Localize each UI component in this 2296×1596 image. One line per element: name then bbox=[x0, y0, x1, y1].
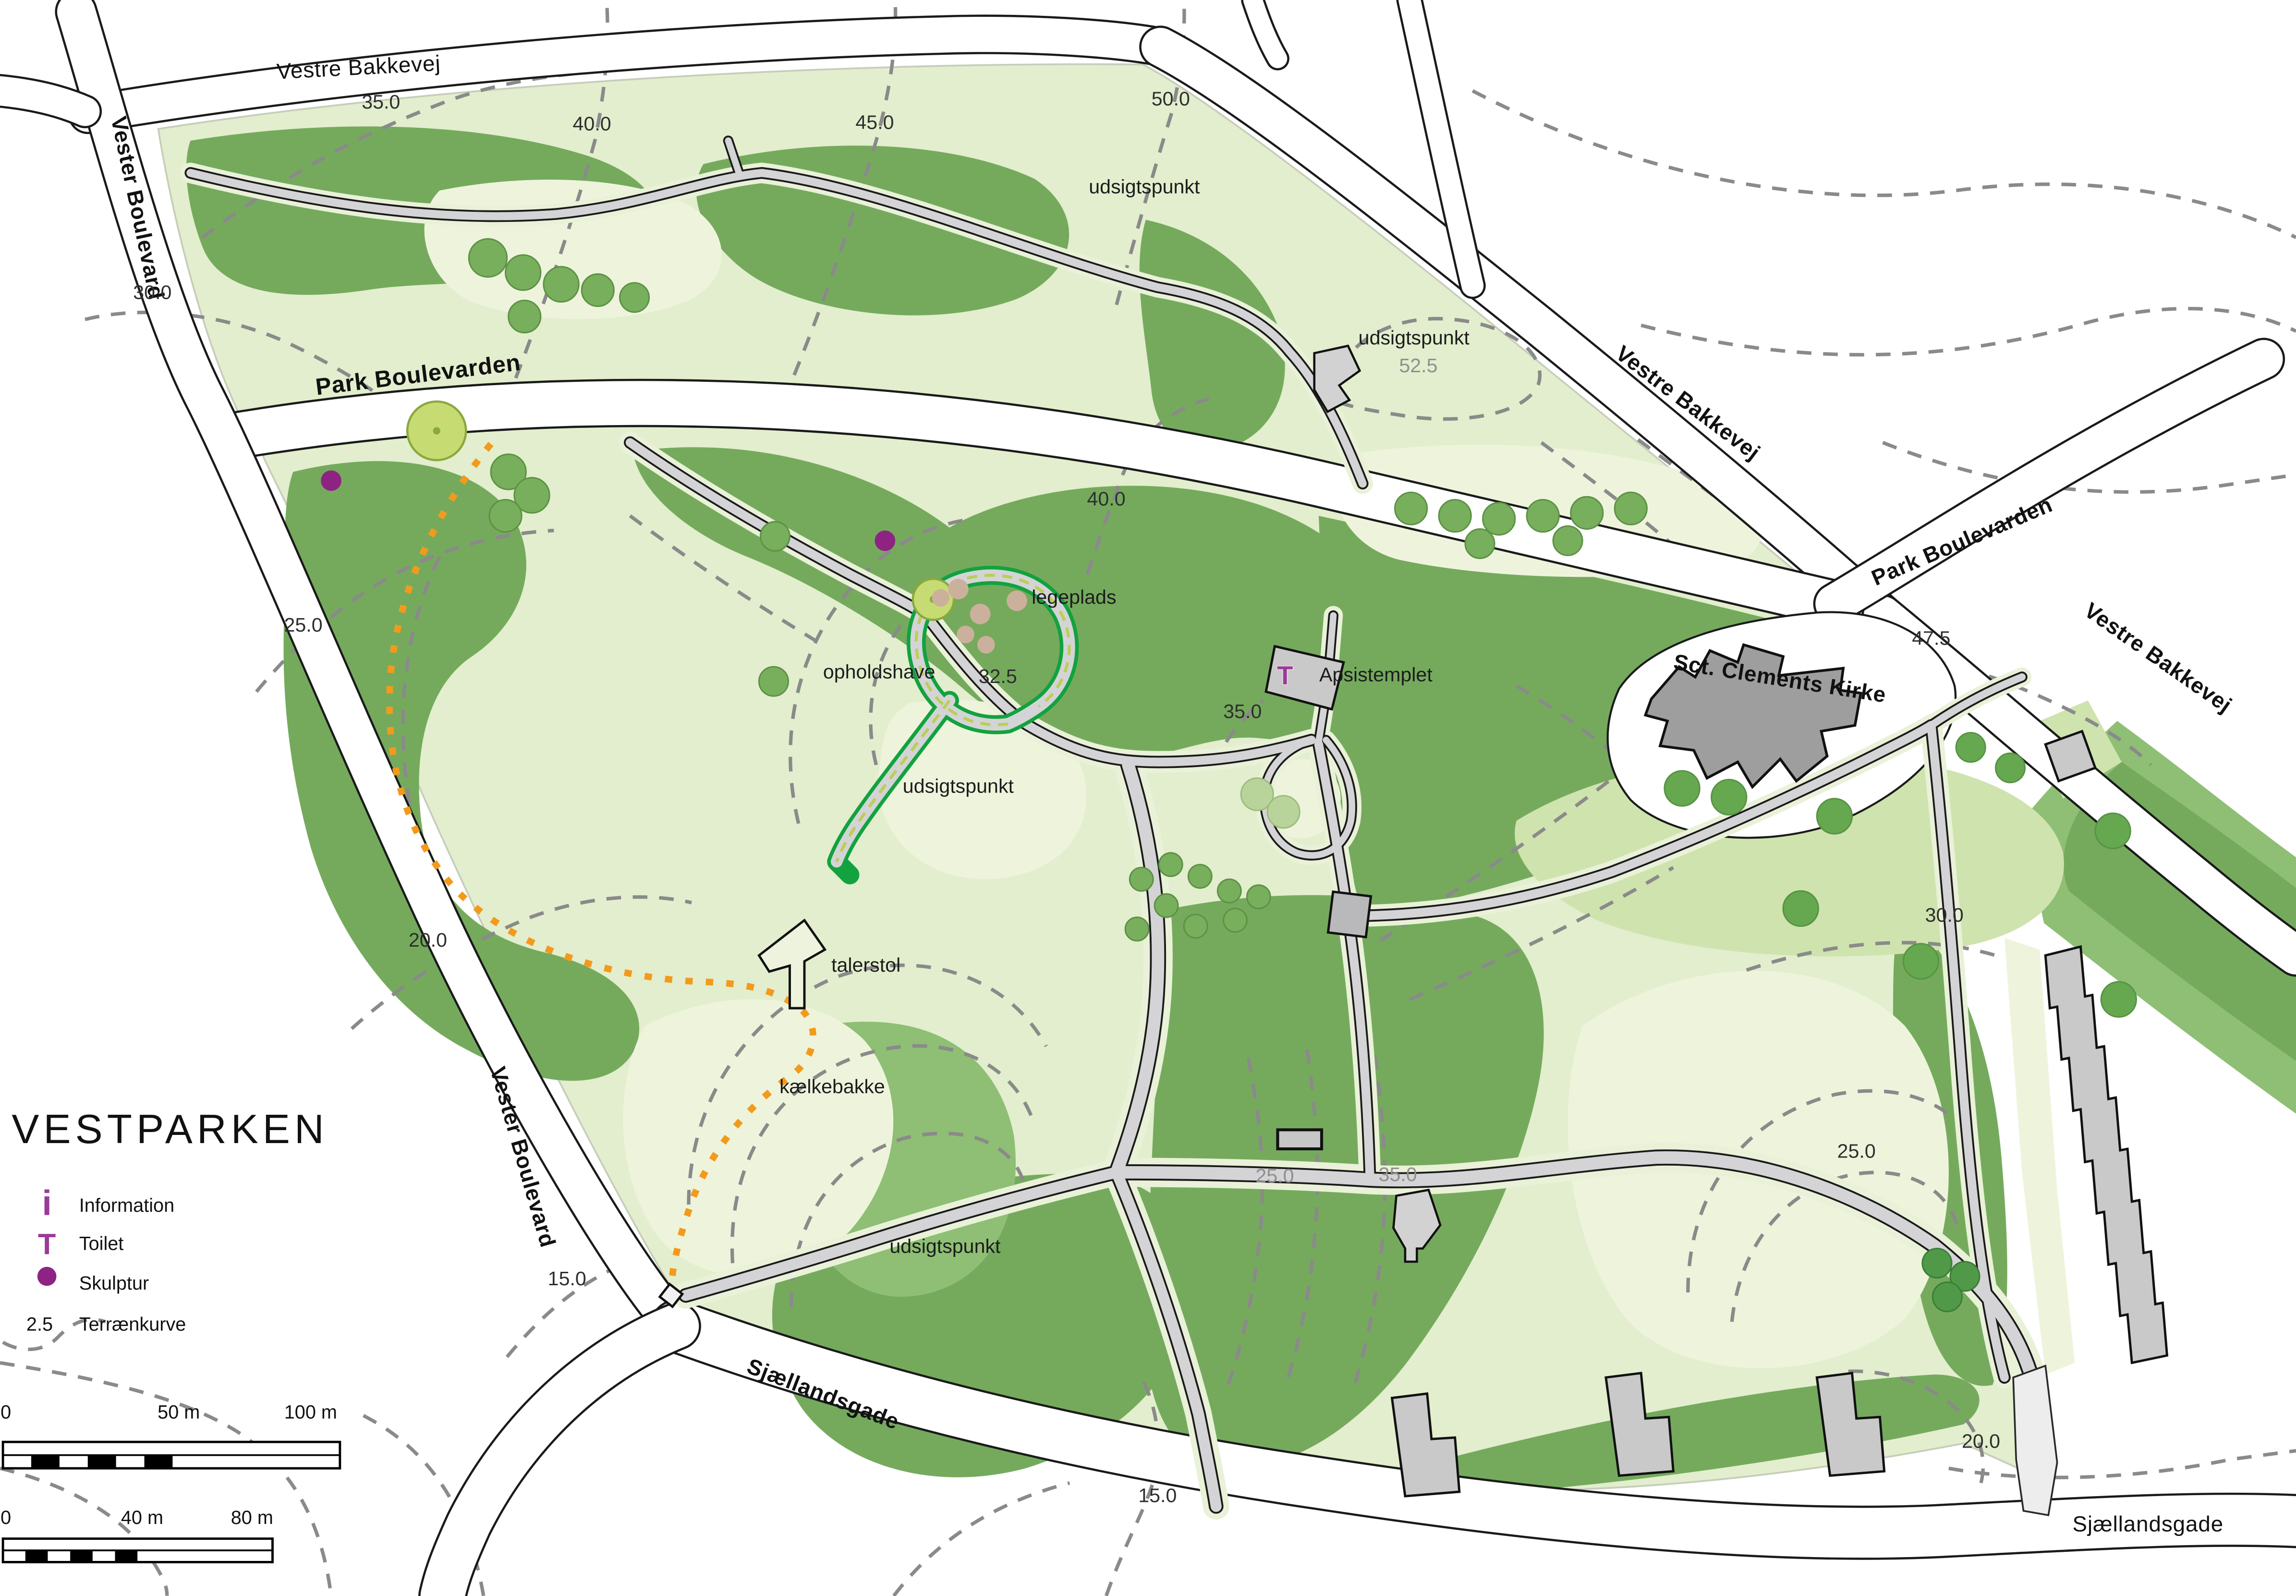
tree-icon bbox=[1184, 914, 1207, 938]
scale-label: 0 bbox=[0, 1507, 11, 1528]
tree-icon bbox=[759, 667, 788, 696]
toilet-icon: T bbox=[1277, 660, 1293, 690]
tree-icon bbox=[469, 239, 507, 277]
contour-sample-value: 2.5 bbox=[26, 1314, 53, 1335]
tree-icon bbox=[1125, 917, 1149, 941]
scale-label: 80 m bbox=[231, 1507, 273, 1528]
tree-icon bbox=[1932, 1282, 1962, 1312]
tree-icon bbox=[1712, 780, 1747, 815]
poi-label: kælkebakke bbox=[779, 1075, 885, 1097]
sand-patch bbox=[948, 579, 969, 599]
tree-icon bbox=[2101, 982, 2136, 1017]
contour-label: 25.0 bbox=[284, 614, 322, 636]
legend-item-information: Information bbox=[79, 1195, 174, 1216]
contour-label: 47.5 bbox=[1912, 627, 1950, 649]
tree-icon bbox=[1159, 853, 1182, 877]
tree-center-dot bbox=[433, 427, 440, 434]
tree-icon bbox=[1783, 891, 1818, 926]
sand-patch bbox=[932, 589, 949, 607]
legend-item-skulptur: Skulptur bbox=[79, 1273, 149, 1294]
tree-icon bbox=[1664, 771, 1700, 806]
contour-label: 15.0 bbox=[548, 1267, 586, 1290]
sculpture-icon bbox=[37, 1267, 57, 1286]
scale-label: 100 m bbox=[284, 1401, 337, 1423]
tree-icon bbox=[582, 274, 614, 306]
tree-icon bbox=[1247, 885, 1270, 909]
tree-icon bbox=[1527, 500, 1559, 532]
contour-label: 30.0 bbox=[133, 281, 171, 303]
poi-label: talerstol bbox=[831, 954, 900, 976]
sand-patch bbox=[957, 626, 974, 644]
tree-icon bbox=[1154, 894, 1178, 917]
contour-label: 35.0 bbox=[1223, 700, 1262, 722]
contour-label: 20.0 bbox=[409, 929, 447, 951]
contour-label: 30.0 bbox=[1925, 904, 1964, 926]
tree-icon bbox=[1553, 526, 1582, 555]
tree-icon bbox=[1996, 753, 2025, 782]
sand-patch bbox=[977, 636, 995, 654]
contour-label: 35.0 bbox=[1379, 1163, 1417, 1185]
contour-label: 15.0 bbox=[1138, 1484, 1177, 1506]
tree-icon bbox=[1395, 492, 1427, 524]
tree-icon bbox=[1483, 503, 1515, 535]
tree-icon bbox=[760, 522, 790, 551]
poi-label: Apsistemplet bbox=[1319, 664, 1433, 686]
tree-icon bbox=[1267, 796, 1300, 828]
tree-icon bbox=[1615, 492, 1647, 524]
contour-label: 20.0 bbox=[1962, 1430, 2000, 1452]
street-label: Vestre Bakkevej bbox=[2080, 598, 2236, 718]
scale-label: 0 bbox=[0, 1401, 11, 1423]
sand-patch bbox=[1007, 591, 1027, 611]
contour-label: 25.0 bbox=[1837, 1140, 1876, 1162]
tree-icon bbox=[620, 283, 649, 312]
tree-icon bbox=[1571, 497, 1603, 529]
poi-label: udsigtspunkt bbox=[903, 775, 1014, 797]
tree-icon bbox=[489, 500, 522, 532]
scale-label: 50 m bbox=[158, 1401, 200, 1423]
contour-label: 52.5 bbox=[1399, 354, 1437, 377]
stairs-structure bbox=[1278, 1130, 1322, 1149]
tree-icon bbox=[1903, 944, 1938, 979]
map-legend: VESTPARKEN i Information T Toilet Skulpt… bbox=[3, 1107, 328, 1350]
sculpture-icon bbox=[321, 470, 341, 491]
contour-label: 40.0 bbox=[573, 113, 611, 135]
tree-icon bbox=[1817, 799, 1852, 834]
tree-icon bbox=[544, 267, 579, 302]
tree-icon bbox=[1465, 529, 1494, 558]
contour-label: 32.5 bbox=[979, 665, 1017, 687]
sand-patch bbox=[970, 604, 991, 624]
tree-icon bbox=[1224, 909, 1247, 932]
scale-bar-80m: 0 40 m 80 m bbox=[0, 1507, 273, 1562]
tree-icon bbox=[1130, 867, 1153, 891]
poi-label: udsigtspunkt bbox=[1359, 327, 1470, 349]
street-label: Sjællandsgade bbox=[2073, 1511, 2224, 1536]
exit-path bbox=[2013, 1366, 2057, 1515]
tree-icon bbox=[1439, 500, 1471, 532]
poi-label: opholdshave bbox=[823, 661, 935, 683]
tree-icon bbox=[1922, 1248, 1952, 1278]
tree-icon bbox=[1217, 879, 1241, 903]
vestparken-park-map: T Vestre BakkevejVester BoulevardPark Bo… bbox=[0, 0, 2296, 1596]
tree-icon bbox=[1956, 733, 1985, 762]
path-crossing bbox=[1328, 892, 1371, 937]
contour-label: 35.0 bbox=[362, 91, 400, 113]
contour-label: 50.0 bbox=[1152, 88, 1190, 110]
tree-icon bbox=[2095, 813, 2130, 848]
contour-label: 45.0 bbox=[855, 111, 894, 133]
contour-label: 25.0 bbox=[1255, 1165, 1294, 1187]
sculpture-icon bbox=[875, 530, 895, 551]
legend-item-terraenkurve: Terrænkurve bbox=[79, 1314, 186, 1335]
poi-label: udsigtspunkt bbox=[889, 1235, 1001, 1257]
scale-label: 40 m bbox=[121, 1507, 163, 1528]
contour-label: 40.0 bbox=[1087, 488, 1125, 510]
information-icon: i bbox=[42, 1183, 51, 1222]
poi-label: legeplads bbox=[1032, 586, 1116, 608]
tree-icon bbox=[1188, 865, 1212, 888]
page-title: VESTPARKEN bbox=[12, 1107, 328, 1152]
toilet-icon: T bbox=[38, 1228, 56, 1261]
legend-item-toilet: Toilet bbox=[79, 1233, 124, 1255]
tree-icon bbox=[506, 255, 541, 290]
tree-icon bbox=[509, 300, 541, 332]
scale-bar-100m: 0 50 m 100 m bbox=[0, 1401, 340, 1468]
poi-label: udsigtspunkt bbox=[1089, 176, 1200, 198]
